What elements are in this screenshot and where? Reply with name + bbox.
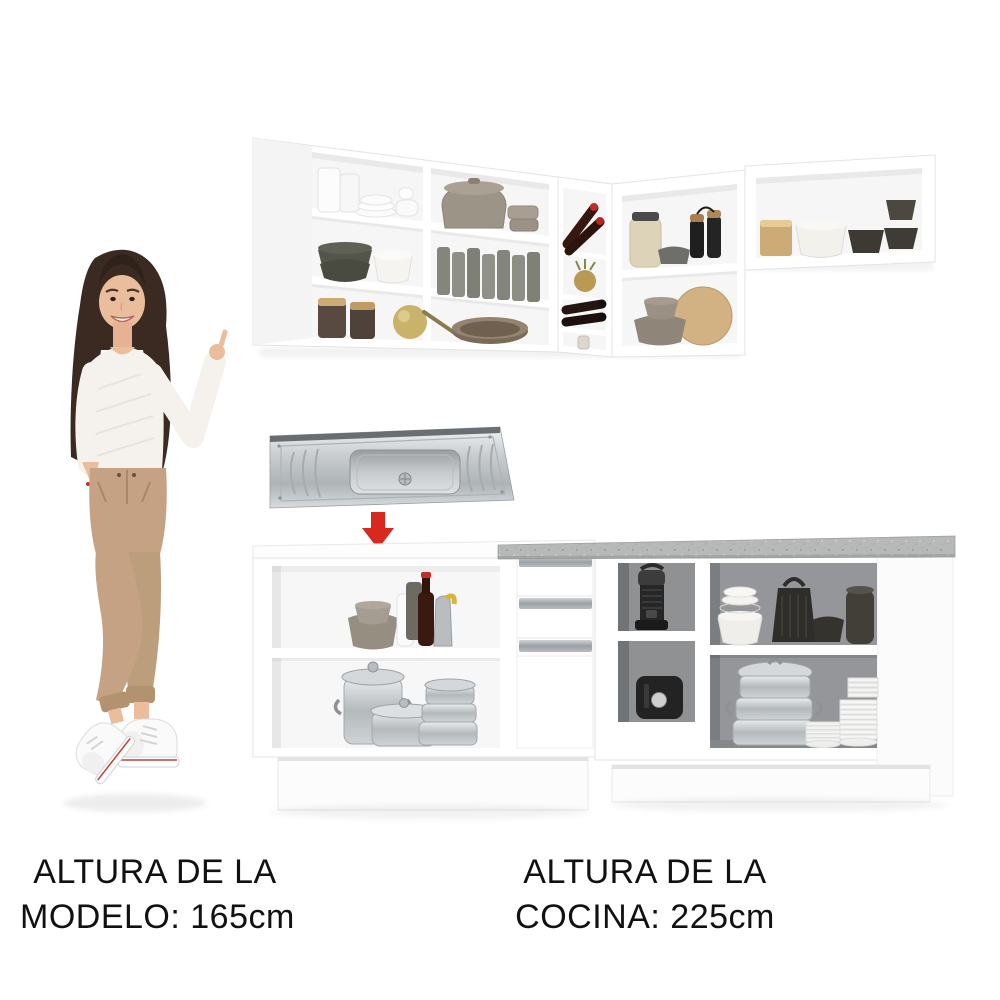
- pocket-arm-sleeve: [85, 372, 92, 464]
- right-side-panel: [877, 556, 953, 796]
- sink: [270, 427, 514, 508]
- drawer-stack: [517, 557, 593, 748]
- gray-bowl: [658, 247, 690, 265]
- model-woman: [63, 250, 225, 812]
- base-cabinet-right: [595, 556, 953, 812]
- left-side-panel: [253, 138, 312, 345]
- plinth-left: [278, 757, 588, 810]
- product-image: ALTURA DE LA MODELO: 165cm ALTURA DE LA …: [0, 0, 1000, 1000]
- caption-model-line1: ALTURA DE LA: [20, 850, 290, 895]
- corner-wall-cabinet: [612, 170, 745, 357]
- caption-kitchen-line2: COCINA: 225cm: [505, 895, 785, 940]
- stile: [695, 563, 710, 748]
- drawer-handle: [519, 640, 592, 652]
- eye: [129, 297, 135, 301]
- wall-cabinets: [253, 138, 935, 357]
- wooden-cutting-board: [674, 287, 732, 345]
- shelf: [710, 645, 877, 655]
- right-wall-cabinet: [745, 155, 935, 270]
- brown-pan: [452, 317, 528, 344]
- cuff: [126, 686, 155, 703]
- caption-model-height: ALTURA DE LA MODELO: 165cm: [20, 850, 290, 940]
- dark-square-bowl: [848, 230, 884, 253]
- sink-basin: [350, 450, 460, 494]
- base-cabinets: [253, 536, 955, 819]
- black-appliance: [636, 676, 683, 719]
- sole: [118, 757, 179, 767]
- shelf: [618, 631, 695, 641]
- stile: [500, 566, 517, 748]
- wine-rack: [558, 177, 612, 357]
- sneaker-crossed: [66, 713, 136, 785]
- left-wall-cabinet: [253, 138, 558, 352]
- steamer-stack: [419, 679, 477, 745]
- dark-bowl: [812, 617, 844, 643]
- base-cabinet-left: [253, 540, 595, 819]
- small-plant: [574, 259, 596, 292]
- neck: [113, 322, 132, 348]
- coffee-column: [618, 563, 695, 722]
- shelf: [272, 648, 500, 658]
- drawer-handle: [519, 598, 592, 609]
- caption-kitchen-line1: ALTURA DE LA: [505, 850, 785, 895]
- white-scalloped-bowls: [796, 220, 846, 258]
- trousers: [89, 468, 167, 726]
- small-bottle: [578, 336, 589, 349]
- floor-shadow: [63, 794, 207, 812]
- caption-kitchen-height: ALTURA DE LA COCINA: 225cm: [505, 850, 785, 940]
- cream-jar: [630, 212, 661, 267]
- cone-grater: [772, 579, 816, 642]
- pointing-finger: [220, 332, 225, 349]
- dark-kettle: [846, 586, 874, 644]
- eye: [110, 297, 116, 301]
- caption-model-line2: MODELO: 165cm: [20, 895, 290, 940]
- ankle: [134, 702, 149, 719]
- plinth-right: [612, 765, 930, 802]
